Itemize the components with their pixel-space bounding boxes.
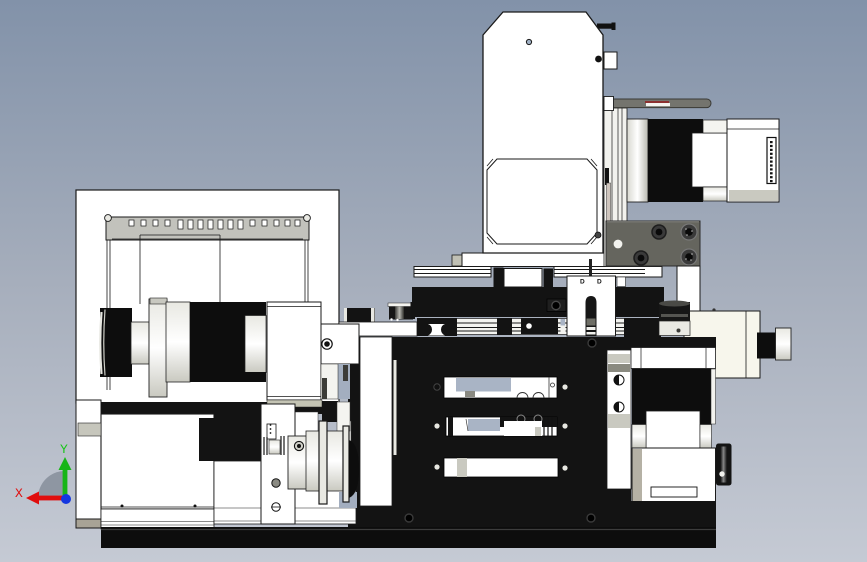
svg-text:D: D	[580, 279, 585, 286]
svg-text:X: X	[15, 486, 23, 501]
svg-text:Y: Y	[60, 442, 68, 457]
svg-text:D: D	[597, 279, 602, 286]
